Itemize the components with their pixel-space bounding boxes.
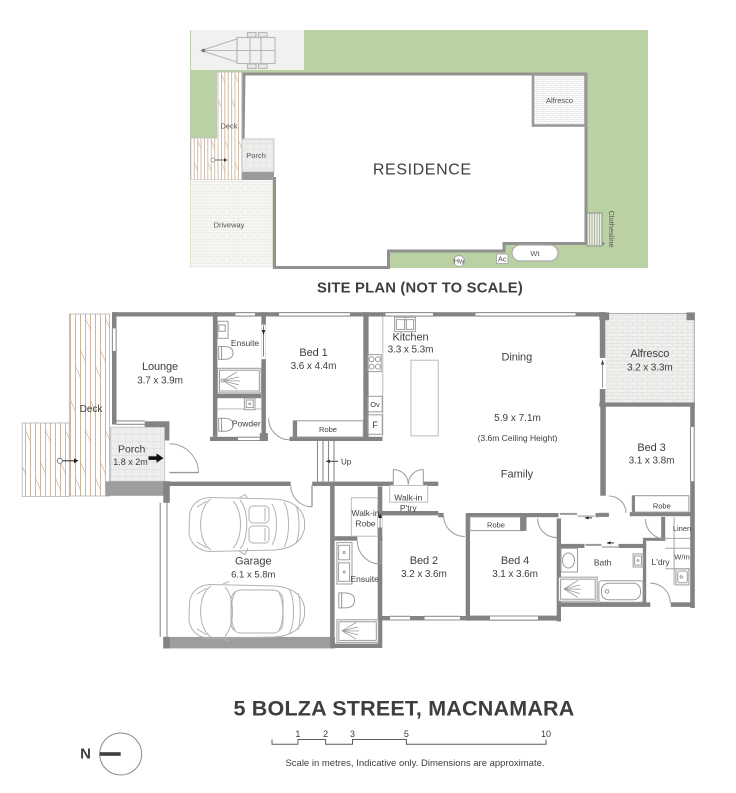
svg-text:Bed 2: Bed 2 — [410, 555, 438, 567]
svg-text:Robe: Robe — [653, 501, 671, 510]
svg-text:Wt: Wt — [530, 249, 540, 258]
svg-text:Lounge: Lounge — [142, 361, 178, 373]
svg-text:3.2 x 3.6m: 3.2 x 3.6m — [401, 569, 447, 580]
svg-text:Dining: Dining — [502, 352, 533, 364]
svg-text:3.6 x 4.4m: 3.6 x 4.4m — [291, 361, 337, 372]
svg-text:Bed 1: Bed 1 — [299, 347, 327, 359]
svg-text:Alfresco: Alfresco — [630, 348, 669, 360]
svg-text:N: N — [80, 746, 91, 763]
svg-text:Scale in metres, Indicative on: Scale in metres, Indicative only. Dimens… — [285, 758, 544, 769]
svg-text:Deck: Deck — [80, 404, 104, 415]
svg-text:SITE PLAN (NOT TO SCALE): SITE PLAN (NOT TO SCALE) — [317, 281, 523, 297]
svg-text:3.2 x 3.3m: 3.2 x 3.3m — [627, 363, 673, 374]
svg-text:F: F — [372, 420, 378, 430]
svg-text:(3.6m Ceiling Height): (3.6m Ceiling Height) — [478, 433, 558, 443]
svg-text:Ensuite: Ensuite — [231, 338, 260, 348]
svg-text:Walk-in: Walk-in — [394, 493, 422, 503]
svg-text:Family: Family — [501, 469, 534, 481]
svg-text:Robe: Robe — [319, 425, 337, 434]
svg-text:3.1 x 3.6m: 3.1 x 3.6m — [492, 569, 538, 580]
svg-text:Alfresco: Alfresco — [546, 96, 573, 105]
svg-text:Robe: Robe — [487, 521, 505, 530]
svg-text:Porch: Porch — [118, 444, 146, 456]
svg-text:Powder: Powder — [232, 418, 261, 428]
svg-text:Driveway: Driveway — [214, 221, 245, 230]
svg-text:3.1 x 3.8m: 3.1 x 3.8m — [629, 456, 675, 467]
svg-text:RESIDENCE: RESIDENCE — [373, 162, 472, 179]
svg-text:6.1 x 5.8m: 6.1 x 5.8m — [231, 570, 275, 581]
svg-text:Garage: Garage — [235, 556, 272, 568]
svg-text:1: 1 — [295, 729, 300, 739]
svg-text:Up: Up — [341, 458, 352, 467]
svg-text:P'try: P'try — [400, 503, 417, 513]
svg-text:Ov: Ov — [370, 400, 380, 409]
svg-text:Bath: Bath — [594, 558, 612, 568]
svg-text:W/m: W/m — [674, 553, 689, 562]
svg-text:Porch: Porch — [246, 151, 266, 160]
svg-text:2: 2 — [323, 729, 328, 739]
svg-text:Ac: Ac — [498, 254, 507, 263]
svg-text:3.3 x 5.3m: 3.3 x 5.3m — [388, 345, 434, 356]
svg-text:Ensuite: Ensuite — [351, 574, 380, 584]
svg-text:5.9 x 7.1m: 5.9 x 7.1m — [494, 413, 541, 424]
svg-text:Linen: Linen — [673, 524, 691, 533]
svg-text:Hw: Hw — [454, 256, 465, 265]
svg-text:10: 10 — [541, 729, 551, 739]
svg-text:5 BOLZA STREET, MACNAMARA: 5 BOLZA STREET, MACNAMARA — [233, 697, 574, 721]
svg-text:3: 3 — [350, 729, 355, 739]
svg-text:1.8 x 2m: 1.8 x 2m — [113, 457, 148, 467]
svg-text:Walk-in: Walk-in — [351, 508, 379, 518]
svg-text:5: 5 — [404, 729, 409, 739]
svg-text:Bed 3: Bed 3 — [637, 442, 665, 454]
svg-text:Robe: Robe — [355, 519, 376, 529]
svg-text:L'dry: L'dry — [652, 557, 671, 567]
svg-text:3.7 x 3.9m: 3.7 x 3.9m — [137, 376, 183, 387]
svg-text:Kitchen: Kitchen — [393, 332, 429, 344]
svg-text:Bed 4: Bed 4 — [501, 555, 529, 567]
svg-text:Clothesline: Clothesline — [607, 210, 616, 247]
svg-text:Deck: Deck — [220, 122, 237, 131]
